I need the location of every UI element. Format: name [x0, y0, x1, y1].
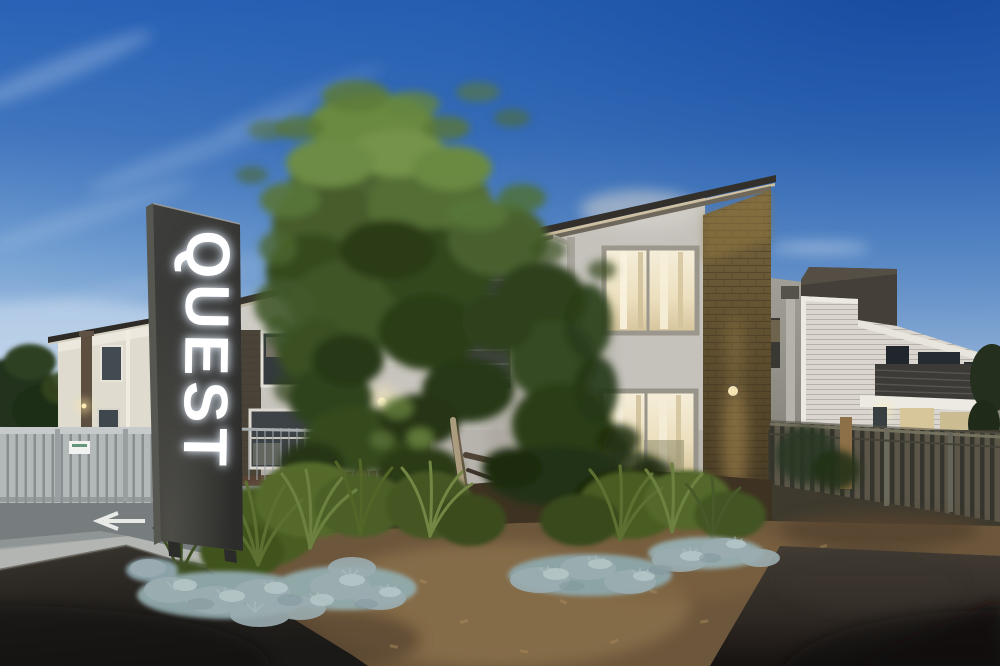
svg-text:QUEST: QUEST: [170, 230, 242, 472]
